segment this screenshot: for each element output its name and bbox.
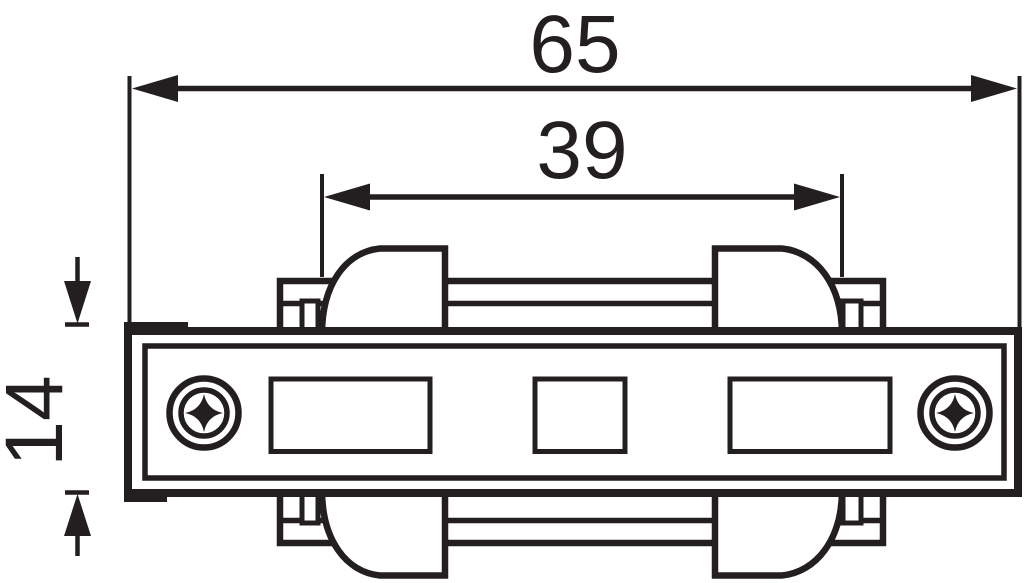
top-right-coil-tab: [715, 249, 842, 335]
arrowhead-right-icon: [971, 75, 1017, 102]
top-core-assembly: [280, 249, 883, 335]
screw-left: [170, 379, 239, 448]
plate-bottom-left-ledge: [124, 490, 167, 502]
arrowhead-left-icon: [132, 75, 178, 102]
dimension-body-height: 14: [0, 257, 91, 556]
mounting-plate: [124, 322, 1018, 502]
dimension-value-65: 65: [529, 0, 620, 90]
bottom-left-coil-tab: [322, 490, 445, 576]
arrowhead-up-icon: [64, 494, 91, 536]
arrowhead-right-icon: [794, 184, 840, 211]
window-middle: [535, 379, 625, 452]
dimension-value-39: 39: [536, 105, 627, 196]
bottom-core-assembly: [280, 490, 883, 576]
arrowhead-left-icon: [324, 184, 370, 211]
plate-top-left-ledge: [124, 322, 188, 334]
top-left-coil-tab: [322, 249, 445, 335]
screw-right: [921, 379, 990, 448]
window-right: [730, 379, 890, 452]
bottom-right-coil-tab: [715, 490, 842, 576]
technical-drawing: 65 39 14: [0, 0, 1024, 583]
dimension-drawing-canvas: 65 39 14: [0, 0, 1024, 583]
window-left: [271, 379, 430, 452]
arrowhead-down-icon: [64, 281, 91, 324]
dimension-value-14: 14: [0, 375, 80, 466]
